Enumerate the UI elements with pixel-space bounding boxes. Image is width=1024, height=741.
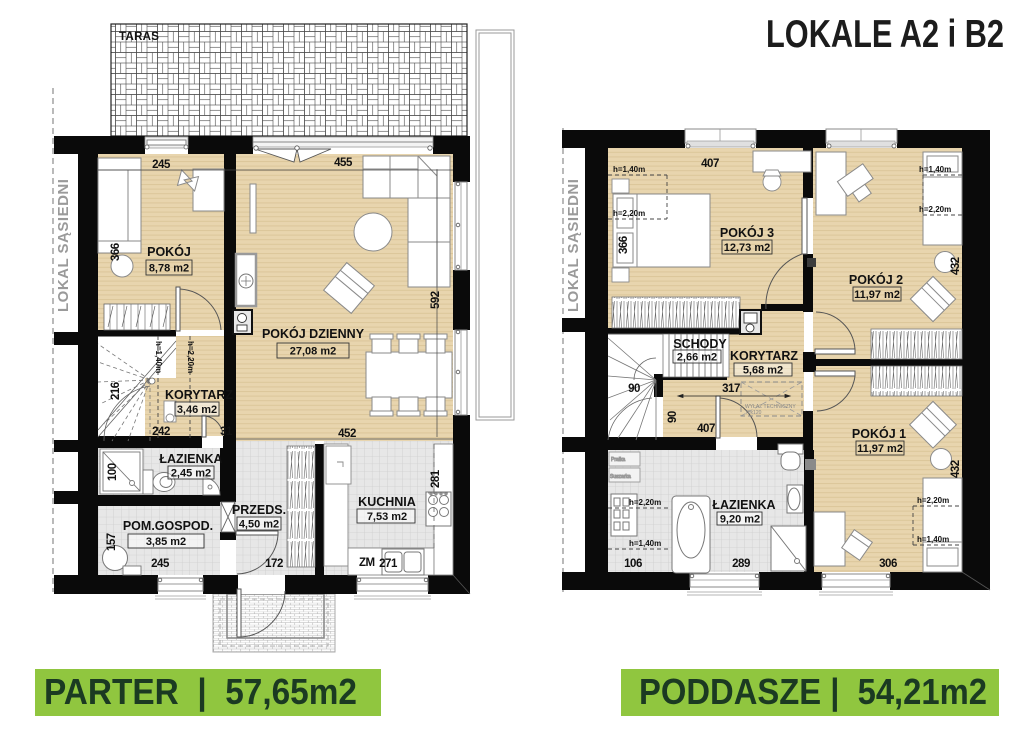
svg-text:281: 281 <box>430 469 442 488</box>
svg-text:2,45 m2: 2,45 m2 <box>171 468 211 480</box>
svg-text:106: 106 <box>624 558 642 570</box>
svg-text:h=1,40m: h=1,40m <box>613 165 645 174</box>
svg-text:306: 306 <box>879 558 897 570</box>
svg-text:70x120: 70x120 <box>745 410 762 416</box>
svg-text:8,78 m2: 8,78 m2 <box>149 263 189 275</box>
svg-text:11,97 m2: 11,97 m2 <box>854 289 900 301</box>
svg-text:3,46 m2: 3,46 m2 <box>177 404 217 416</box>
svg-text:h=1,40m: h=1,40m <box>917 535 949 544</box>
svg-text:Pralka: Pralka <box>611 457 625 463</box>
svg-text:POM.GOSPOD.: POM.GOSPOD. <box>123 519 213 533</box>
svg-text:PARTER | 57,65m2: PARTER | 57,65m2 <box>44 671 357 713</box>
svg-text:9,20 m2: 9,20 m2 <box>720 514 760 526</box>
svg-text:LOKAL SĄSIEDNI: LOKAL SĄSIEDNI <box>55 179 72 312</box>
svg-text:90: 90 <box>667 411 679 423</box>
svg-text:KUCHNIA: KUCHNIA <box>358 495 416 509</box>
svg-text:PRZEDS.: PRZEDS. <box>232 503 286 517</box>
svg-text:h=2,20m: h=2,20m <box>629 498 661 507</box>
svg-text:317: 317 <box>722 383 740 395</box>
svg-text:PODDASZE | 54,21m2: PODDASZE | 54,21m2 <box>639 671 987 713</box>
svg-text:7,53 m2: 7,53 m2 <box>367 511 407 523</box>
svg-text:KORYTARZ: KORYTARZ <box>730 349 798 363</box>
svg-text:KORYTARZ: KORYTARZ <box>165 388 233 402</box>
svg-text:ŁAZIENKA: ŁAZIENKA <box>159 452 222 466</box>
svg-text:h=2,20m: h=2,20m <box>917 496 949 505</box>
svg-text:4,50 m2: 4,50 m2 <box>239 519 279 531</box>
svg-text:TARAS: TARAS <box>119 31 159 43</box>
svg-text:592: 592 <box>430 291 442 309</box>
svg-text:90: 90 <box>628 383 640 395</box>
svg-text:h=1,40m: h=1,40m <box>919 165 951 174</box>
svg-text:216: 216 <box>110 382 122 400</box>
svg-text:27,08 m2: 27,08 m2 <box>290 346 336 358</box>
svg-text:245: 245 <box>151 558 170 570</box>
svg-text:POKÓJ: POKÓJ <box>147 244 191 259</box>
svg-text:h=2,20m: h=2,20m <box>613 209 645 218</box>
svg-text:Suszarka: Suszarka <box>610 474 631 480</box>
svg-text:5,68 m2: 5,68 m2 <box>743 365 783 377</box>
svg-text:11,97 m2: 11,97 m2 <box>857 443 903 455</box>
svg-text:172: 172 <box>265 558 283 570</box>
svg-text:LOKAL SĄSIEDNI: LOKAL SĄSIEDNI <box>565 179 582 312</box>
svg-text:h=2,20m: h=2,20m <box>919 205 951 214</box>
svg-text:POKÓJ 1: POKÓJ 1 <box>852 426 906 441</box>
svg-text:289: 289 <box>732 558 750 570</box>
svg-text:2,66 m2: 2,66 m2 <box>677 352 717 364</box>
svg-text:271: 271 <box>379 558 398 570</box>
svg-text:366: 366 <box>618 236 630 254</box>
svg-text:ZM: ZM <box>359 557 375 569</box>
svg-text:SCHODY: SCHODY <box>673 337 727 351</box>
svg-text:452: 452 <box>338 428 356 440</box>
svg-text:h=2,20m: h=2,20m <box>186 341 195 373</box>
svg-text:ŁAZIENKA: ŁAZIENKA <box>712 498 775 512</box>
svg-text:12,73 m2: 12,73 m2 <box>724 242 770 254</box>
svg-text:LOKALE A2 i B2: LOKALE A2 i B2 <box>766 13 1004 56</box>
svg-text:245: 245 <box>152 159 171 171</box>
svg-text:432: 432 <box>950 257 962 275</box>
svg-text:POKÓJ DZIENNY: POKÓJ DZIENNY <box>262 326 365 341</box>
svg-text:POKÓJ 3: POKÓJ 3 <box>720 225 774 240</box>
svg-text:3,85 m2: 3,85 m2 <box>146 536 186 548</box>
svg-text:100: 100 <box>107 463 119 481</box>
svg-text:432: 432 <box>950 460 962 478</box>
svg-text:POKÓJ 2: POKÓJ 2 <box>849 272 903 287</box>
svg-text:407: 407 <box>697 423 715 435</box>
svg-text:h=1,40m: h=1,40m <box>154 341 163 373</box>
svg-text:242: 242 <box>152 426 170 438</box>
svg-text:31: 31 <box>220 426 233 438</box>
svg-text:157: 157 <box>106 533 118 551</box>
svg-text:455: 455 <box>334 157 353 169</box>
svg-text:407: 407 <box>701 158 719 170</box>
svg-text:h=1,40m: h=1,40m <box>629 539 661 548</box>
svg-text:366: 366 <box>110 243 122 261</box>
